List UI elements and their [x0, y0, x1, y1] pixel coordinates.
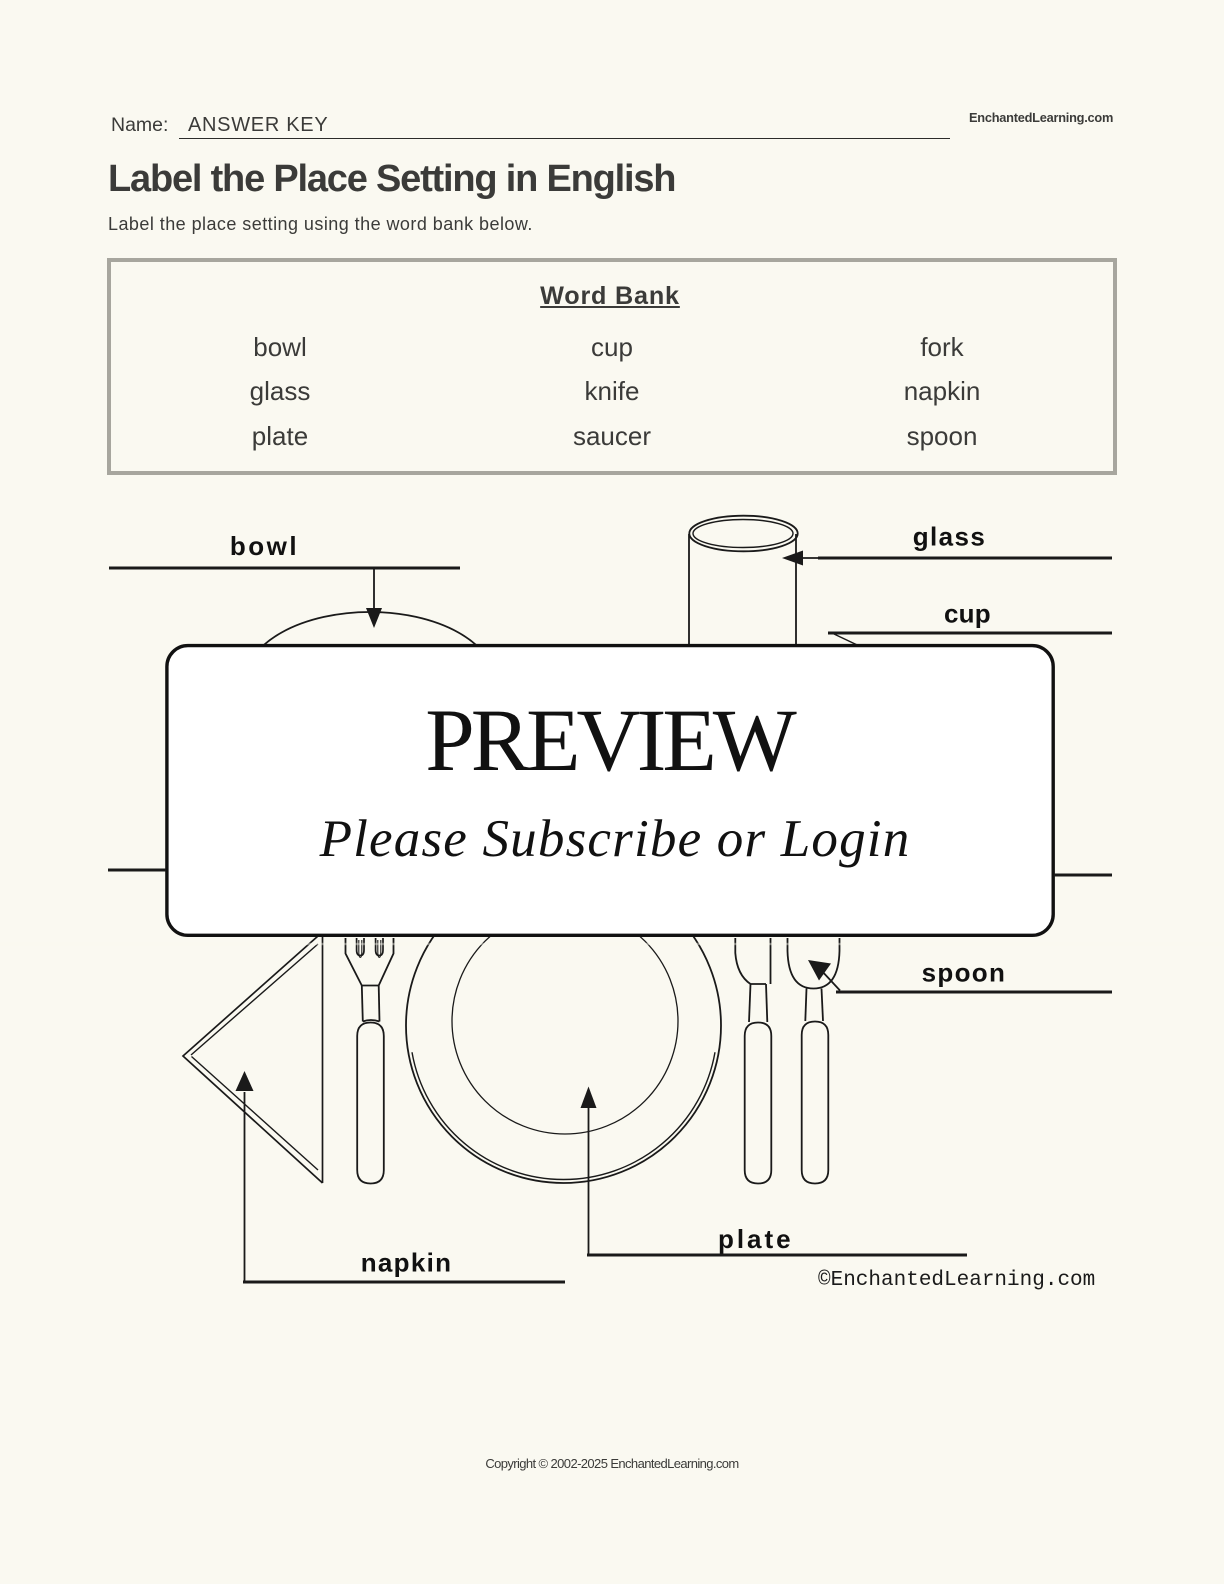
svg-text:PREVIEW: PREVIEW — [425, 692, 797, 790]
svg-text:napkin: napkin — [361, 1248, 453, 1278]
svg-text:spoon: spoon — [922, 957, 1007, 987]
svg-text:plate: plate — [718, 1224, 794, 1254]
svg-text:Please Subscribe or Login: Please Subscribe or Login — [319, 810, 911, 868]
svg-text:glass: glass — [913, 522, 987, 552]
svg-text:©EnchantedLearning.com: ©EnchantedLearning.com — [818, 1269, 1095, 1292]
svg-text:bowl: bowl — [230, 531, 299, 561]
svg-text:cup: cup — [944, 599, 991, 629]
